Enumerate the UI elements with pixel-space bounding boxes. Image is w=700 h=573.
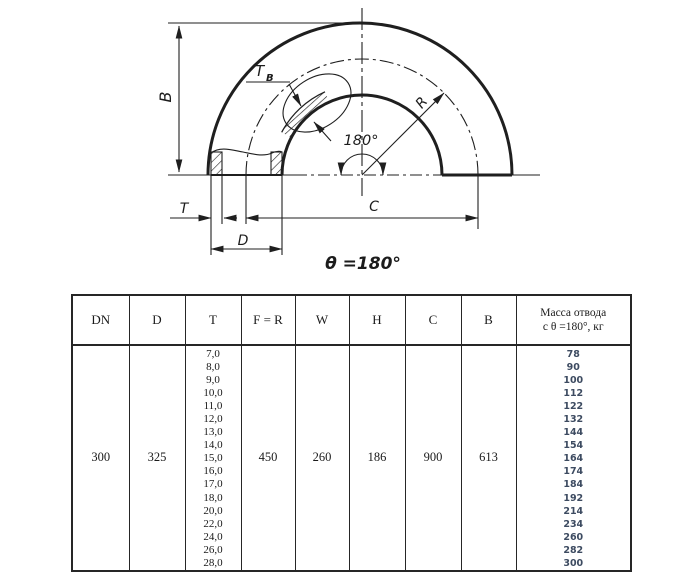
cell-h: 186 — [349, 345, 405, 571]
mass-values-list: 7890100112122132144154164174184192214234… — [517, 346, 631, 570]
header-h: H — [349, 295, 405, 345]
diagram-labels: B T C D R T B 180° θ =180° — [156, 62, 431, 274]
cell-t-values: 7,08,09,010,011,012,013,014,015,016,017,… — [185, 345, 241, 571]
dimensions — [168, 23, 478, 255]
t-label: T — [180, 201, 190, 217]
cell-c: 900 — [405, 345, 461, 571]
d-label: D — [238, 233, 249, 249]
t-values-list: 7,08,09,010,011,012,013,014,015,016,017,… — [186, 346, 241, 570]
header-b: B — [461, 295, 516, 345]
table-row: 300 325 7,08,09,010,011,012,013,014,015,… — [72, 345, 631, 571]
tb-leader-arrow — [289, 84, 301, 106]
dimensions-table: DN D T F = R W H C B Масса отвода с θ =1… — [71, 294, 632, 572]
inner-wall-hatch — [271, 152, 282, 175]
elbow-diagram: B T C D R T B 180° θ =180° — [0, 0, 700, 290]
tb-label-main: T — [255, 62, 266, 80]
cell-fr: 450 — [241, 345, 295, 571]
cell-mass-values: 7890100112122132144154164174184192214234… — [516, 345, 631, 571]
cell-dn: 300 — [72, 345, 129, 571]
cell-w: 260 — [295, 345, 349, 571]
angle-label: 180° — [344, 133, 379, 149]
header-d: D — [129, 295, 185, 345]
tb-label-sub: B — [266, 73, 274, 84]
header-t: T — [185, 295, 241, 345]
page: B T C D R T B 180° θ =180° DN D T F = R — [0, 0, 700, 573]
cell-b: 613 — [461, 345, 516, 571]
outer-arc — [208, 23, 512, 175]
elbow-drawing-svg: B T C D R T B 180° θ =180° — [0, 0, 700, 290]
header-dn: DN — [72, 295, 129, 345]
elbow-body — [208, 23, 512, 175]
outer-wall-hatch — [211, 152, 222, 175]
c-label: C — [369, 199, 379, 215]
header-w: W — [295, 295, 349, 345]
header-c: C — [405, 295, 461, 345]
header-row: DN D T F = R W H C B Масса отвода с θ =1… — [72, 295, 631, 345]
header-mass: Масса отвода с θ =180°, кг — [516, 295, 631, 345]
header-fr: F = R — [241, 295, 295, 345]
centerlines — [168, 8, 540, 196]
cell-d: 325 — [129, 345, 185, 571]
b-label: B — [156, 92, 175, 103]
theta-equation-label: θ =180° — [325, 254, 401, 274]
